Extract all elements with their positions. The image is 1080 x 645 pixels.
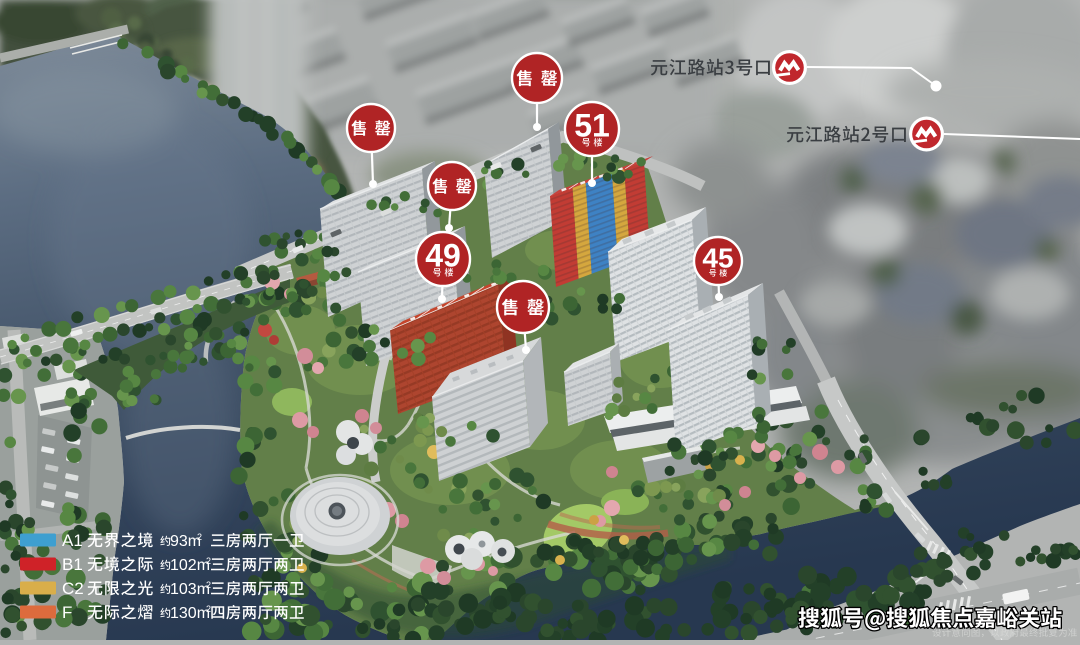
svg-text:2: 2	[197, 532, 202, 542]
svg-text:45: 45	[702, 243, 733, 274]
svg-text:C2: C2	[62, 579, 84, 598]
svg-text:B1: B1	[62, 555, 83, 574]
svg-text:2: 2	[206, 604, 211, 614]
svg-text:51: 51	[574, 108, 610, 144]
svg-text:103m: 103m	[170, 581, 210, 598]
svg-text:A1: A1	[62, 531, 83, 550]
svg-text:2: 2	[206, 580, 211, 590]
svg-text:130m: 130m	[170, 605, 210, 622]
svg-text:F: F	[62, 603, 72, 622]
svg-text:2: 2	[206, 556, 211, 566]
svg-text:49: 49	[425, 238, 461, 274]
svg-text:102m: 102m	[170, 557, 210, 574]
